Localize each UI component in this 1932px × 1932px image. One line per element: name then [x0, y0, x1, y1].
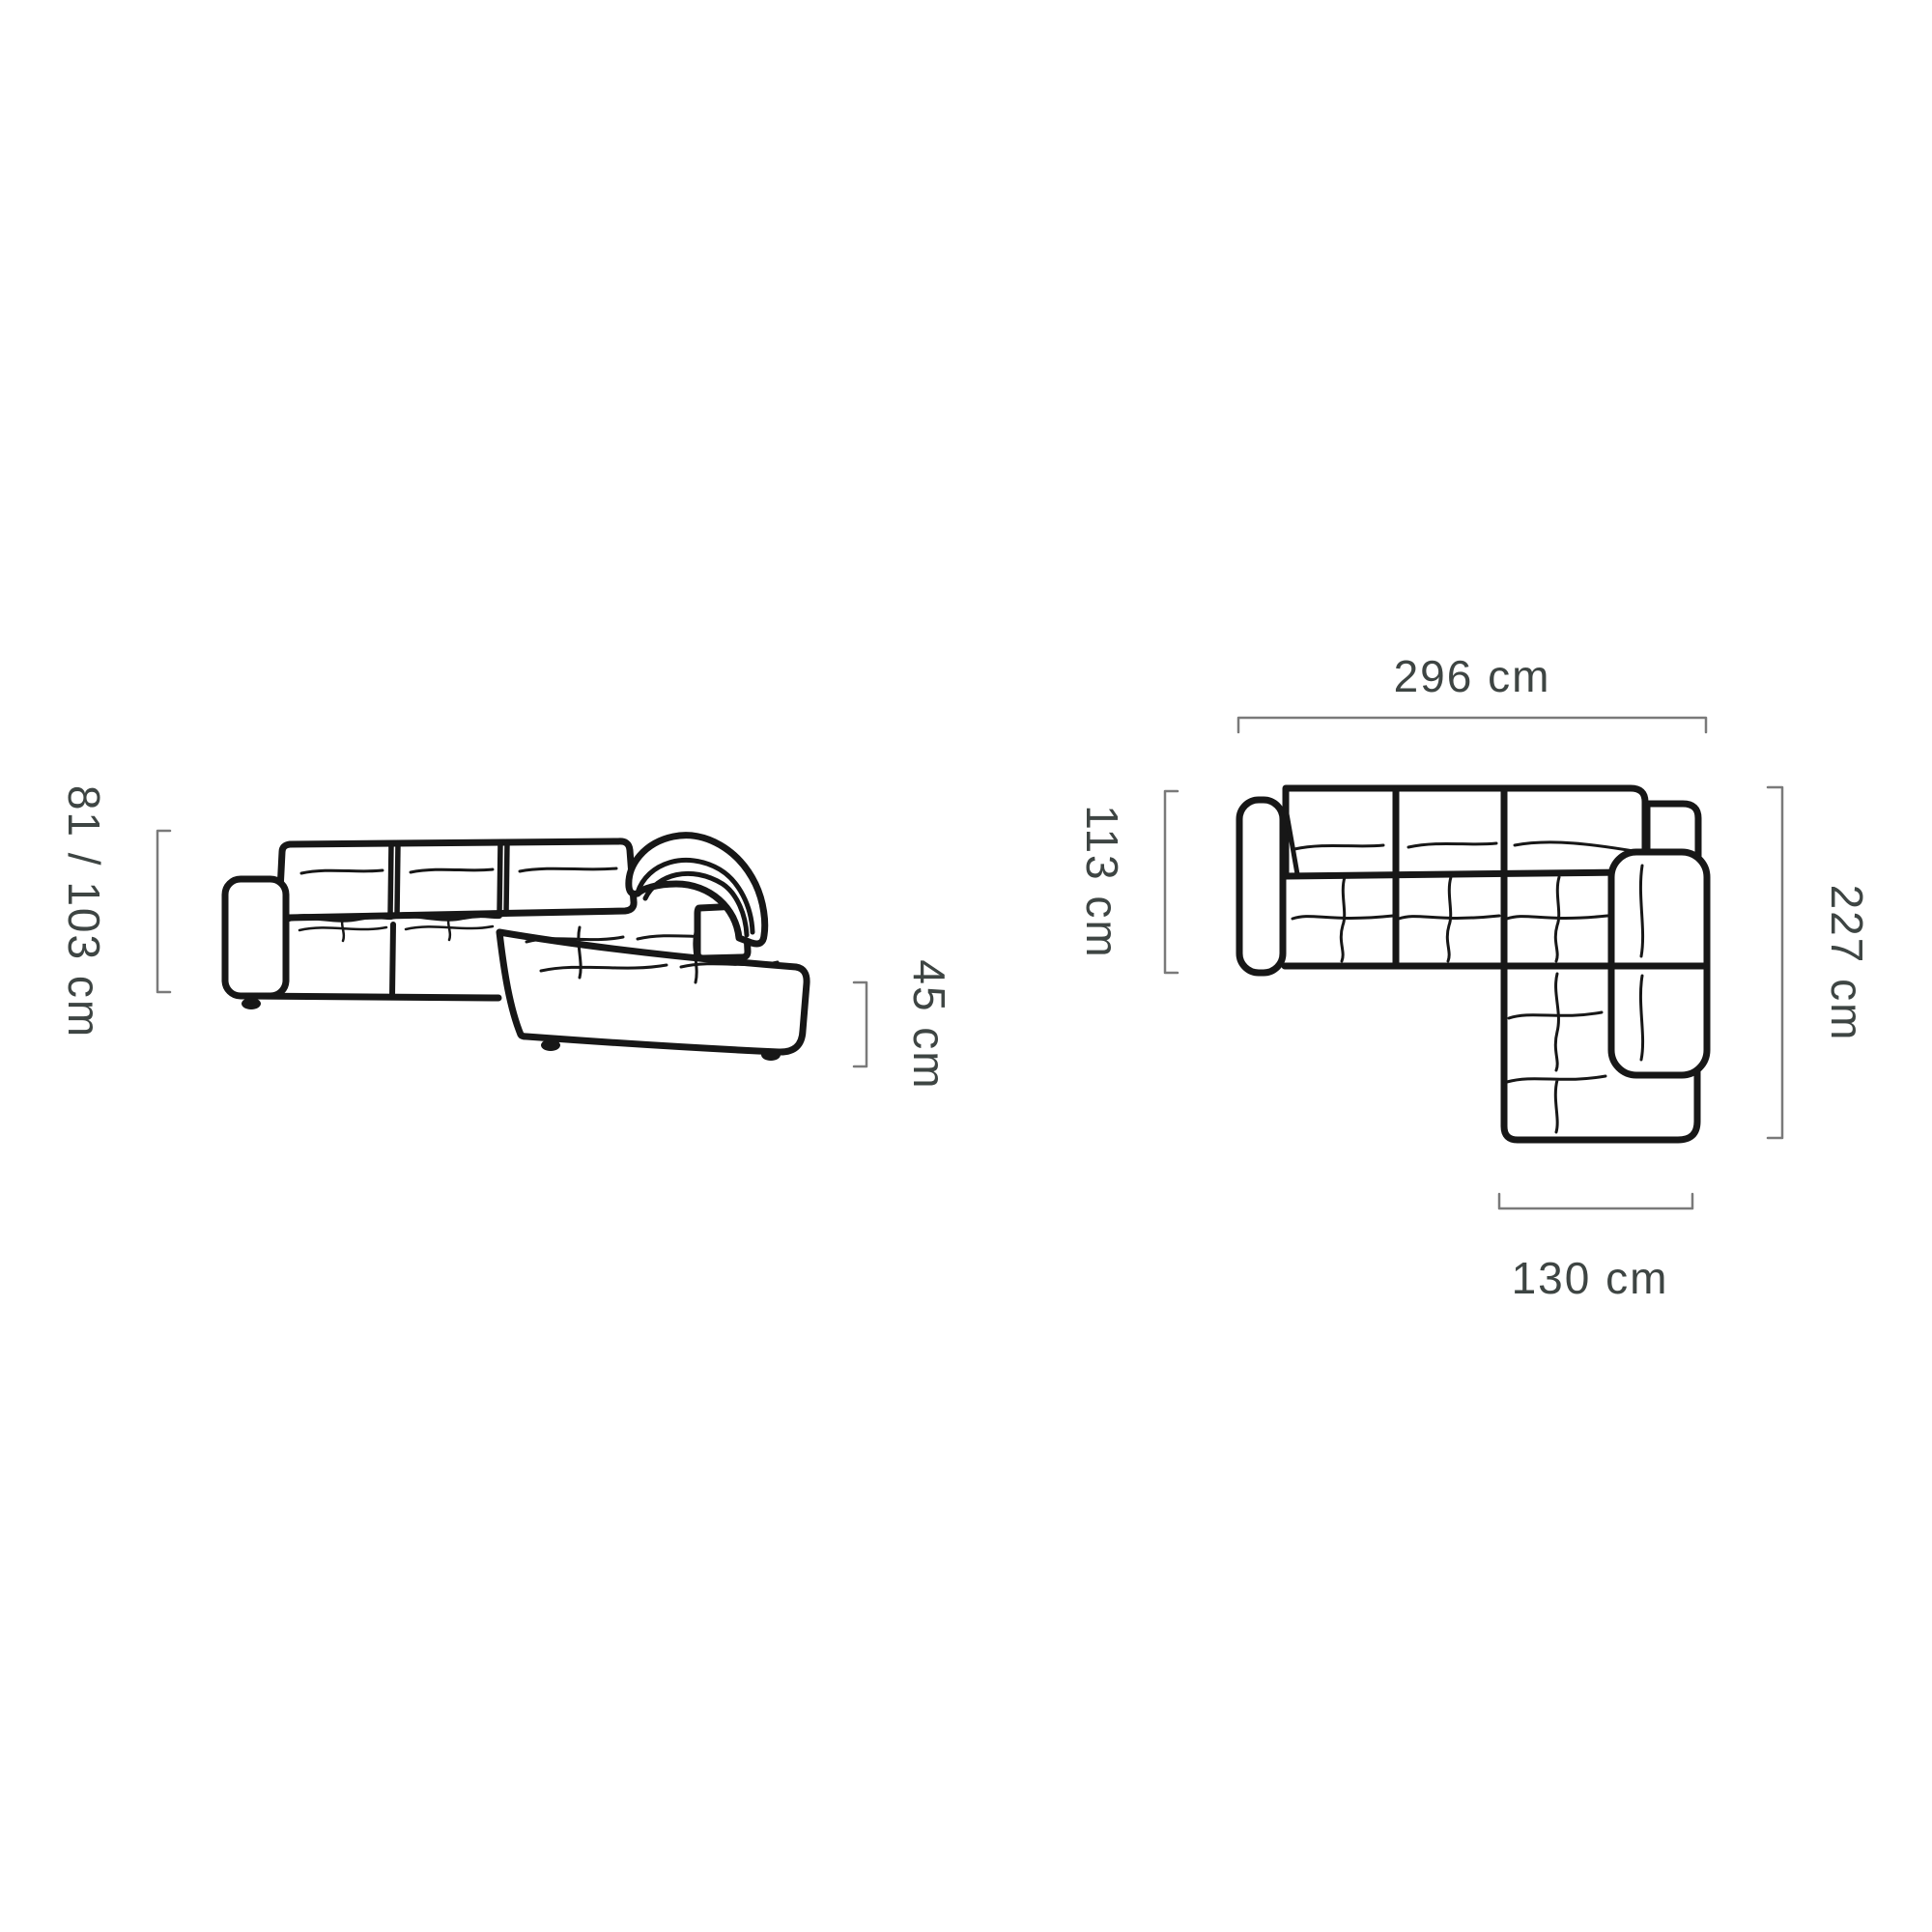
- top-width-dimension-bracket: [1238, 718, 1706, 732]
- side-height-dimension-bracket: [157, 831, 170, 992]
- top-depth-dimension-bracket: [1165, 791, 1178, 973]
- side-chaise: [499, 932, 807, 1052]
- top-chaise-width-dimension-bracket: [1499, 1194, 1692, 1208]
- side-seat-height-dimension-bracket: [854, 982, 867, 1066]
- side-view-height-label: 81 / 103 cm: [59, 785, 109, 1038]
- top-view-total-depth-label: 227 cm: [1822, 885, 1872, 1042]
- top-total-depth-dimension-bracket: [1768, 787, 1782, 1138]
- side-seat-tuft-seam: [286, 915, 499, 920]
- top-left-armrest: [1239, 800, 1283, 973]
- side-left-armrest: [225, 879, 286, 996]
- dimension-diagram: 81 / 103 cm 45 cm 296 cm 113 cm 227 cm 1…: [0, 0, 1932, 1932]
- top-view-chaise-width-label: 130 cm: [1512, 1253, 1669, 1303]
- top-backrest: [1286, 788, 1645, 876]
- top-view-width-label: 296 cm: [1394, 651, 1551, 701]
- top-view-sofa-drawing: [1239, 788, 1707, 1140]
- top-view-depth-label: 113 cm: [1077, 805, 1127, 958]
- side-backrest: [279, 841, 634, 918]
- diagram-figure: 81 / 103 cm 45 cm 296 cm 113 cm 227 cm 1…: [0, 0, 1932, 1932]
- side-view-sofa-drawing: [225, 836, 807, 1061]
- side-view-seat-height-label: 45 cm: [904, 959, 954, 1090]
